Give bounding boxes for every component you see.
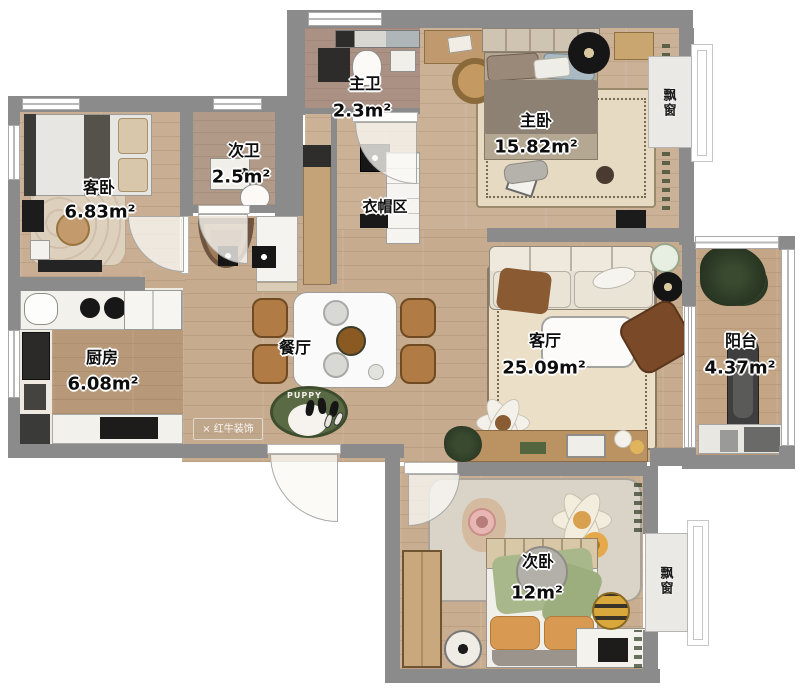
room-area-kitchen: 6.08m² (67, 374, 138, 395)
console-green-box (520, 442, 546, 454)
room-area-balcony: 4.37m² (704, 358, 775, 379)
hall-shoe-cabinet (256, 282, 298, 292)
wall (385, 455, 400, 683)
wall (331, 112, 337, 284)
room-area-master-bedroom: 15.82m² (494, 137, 578, 158)
entry-door-leaf (267, 444, 341, 454)
bay-window-frame (697, 50, 707, 156)
bedroom-daisy-center (573, 511, 591, 529)
wall (487, 228, 683, 242)
master-yarn-ball (596, 166, 614, 184)
window (22, 98, 80, 110)
cloakroom-cabinet-top (303, 145, 331, 167)
kitchen-corner-unit (20, 414, 50, 444)
record-player (568, 32, 610, 74)
kitchen-cooktop (100, 417, 158, 439)
room-label-living: 客厅 (529, 327, 561, 351)
kitchen-fridge (124, 290, 182, 330)
hall-washer (252, 246, 276, 268)
bedroom-laptop (598, 638, 628, 662)
window (308, 12, 382, 26)
window (213, 98, 262, 110)
bay-window-frame (693, 526, 703, 640)
master-white-pillow (533, 56, 571, 80)
wall (8, 277, 145, 291)
window (8, 125, 20, 180)
guest-tv-cabinet (22, 200, 44, 232)
wall (385, 669, 660, 683)
bedroom-round-table (444, 630, 482, 668)
flower-decor-center (495, 415, 511, 431)
room-label-master-bedroom: 主卧 (520, 107, 552, 131)
dining-centerpiece (336, 326, 366, 356)
dining-plate (323, 352, 349, 378)
bedroom-bee-chair (592, 592, 630, 630)
room-label-master-bath: 主卫 (349, 70, 381, 94)
master-desk-book (447, 34, 473, 53)
room-label-kitchen: 厨房 (86, 344, 118, 368)
puppy-rug-text: PUPPY (287, 391, 322, 400)
console-flower (630, 440, 644, 454)
bay-window-label-bottom: 飘窗 (656, 566, 675, 596)
wall (682, 455, 795, 469)
room-label-guest-bedroom: 客卧 (83, 174, 115, 198)
masterbath-shower-mat (318, 48, 350, 82)
room-label-dining: 餐厅 (279, 334, 311, 358)
bedroom-wall-garland (634, 478, 642, 532)
masterbath-sink (390, 50, 416, 72)
dining-plate (323, 300, 349, 326)
sofa-throw-blanket (496, 267, 553, 315)
balcony-plant (700, 246, 766, 306)
balcony-window (781, 249, 795, 446)
side-table-round (650, 243, 680, 273)
wall (455, 462, 647, 476)
console-plant (444, 426, 482, 462)
wall (275, 112, 303, 216)
secondbath-door-leaf (198, 205, 250, 214)
kitchen-small-appliance (24, 384, 46, 410)
guest-bed-headboard (24, 114, 36, 196)
watermark-text: 红牛装饰 (214, 424, 254, 435)
watermark: × 红牛装饰 (193, 418, 263, 440)
bedroom-wall-garland (634, 630, 642, 668)
guest-pillow (118, 118, 148, 154)
dining-chair (400, 298, 436, 338)
guest-shelf (38, 260, 102, 272)
balcony-sliding-door (684, 306, 696, 448)
guest-pillow (118, 158, 148, 192)
wall (8, 444, 268, 458)
room-label-second-bedroom: 次卧 (522, 548, 554, 572)
bay-window-label-top: 飘窗 (659, 88, 678, 118)
kitchen-sink (24, 293, 58, 325)
wall (643, 630, 658, 683)
entry-door-swing (270, 454, 338, 522)
room-area-second-bath: 2.5m² (212, 167, 271, 188)
redbull-logo-icon: × (202, 424, 210, 435)
wall (180, 112, 193, 216)
wall (779, 236, 795, 250)
wall (682, 242, 696, 306)
room-label-cloakroom: 衣帽区 (362, 196, 407, 217)
black-side-table (653, 272, 683, 302)
room-label-second-bath: 次卫 (228, 137, 260, 161)
masterbath-cabinet (335, 30, 420, 48)
bedroom-door-leaf (404, 462, 458, 474)
kitchen-burner (104, 297, 126, 319)
floor-kitchen-center (52, 330, 183, 414)
wall (287, 10, 305, 115)
room-area-living: 25.09m² (502, 358, 586, 379)
kitchen-burner (80, 298, 100, 318)
console-frame (566, 434, 606, 458)
room-area-guest-bedroom: 6.83m² (64, 202, 135, 223)
room-area-second-bedroom: 12m² (511, 583, 563, 604)
window (8, 330, 20, 398)
bedroom-pillow (490, 616, 540, 650)
bedroom-wardrobe (402, 550, 442, 668)
floorplan: PUPPY (0, 0, 800, 700)
dining-chair (252, 298, 288, 338)
room-area-master-bath: 2.3m² (333, 101, 392, 122)
balcony-storage-box (744, 427, 780, 452)
room-label-balcony: 阳台 (725, 327, 757, 351)
guest-stool (30, 240, 50, 260)
dining-chair (400, 344, 436, 384)
master-dresser (616, 210, 646, 228)
wall (643, 466, 658, 534)
dining-small-plate (368, 364, 384, 380)
master-pillow (486, 52, 540, 82)
balcony-window (695, 236, 779, 249)
balcony-storage-box (720, 430, 738, 452)
bedroom-flower-pink (468, 508, 496, 536)
kitchen-oven-tower (22, 332, 50, 380)
